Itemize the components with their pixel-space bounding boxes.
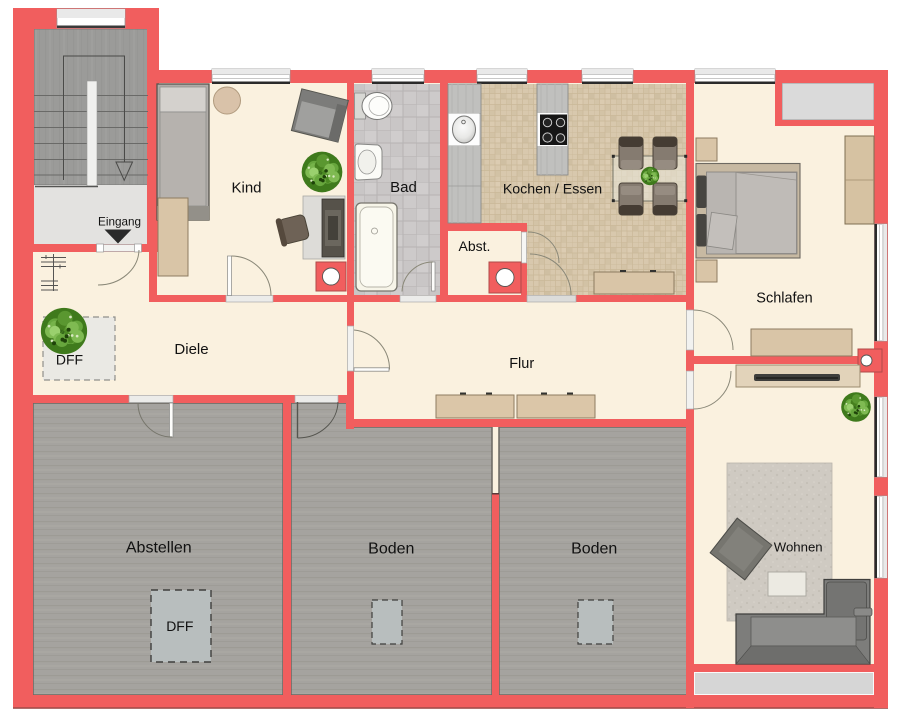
svg-text:Abst.: Abst.	[459, 238, 491, 254]
svg-text:Bad: Bad	[390, 179, 417, 196]
svg-text:Boden: Boden	[368, 541, 414, 558]
svg-text:DFF: DFF	[56, 352, 83, 368]
svg-text:Wohnen: Wohnen	[774, 540, 823, 555]
svg-text:Kochen / Essen: Kochen / Essen	[503, 182, 602, 198]
svg-text:Abstellen: Abstellen	[126, 540, 192, 557]
svg-text:Boden: Boden	[571, 541, 617, 558]
svg-text:Flur: Flur	[509, 356, 534, 372]
svg-text:Kind: Kind	[231, 180, 261, 197]
svg-text:Schlafen: Schlafen	[756, 291, 812, 307]
svg-text:Diele: Diele	[174, 341, 208, 358]
svg-text:DFF: DFF	[166, 618, 193, 634]
svg-text:Eingang: Eingang	[98, 216, 141, 229]
